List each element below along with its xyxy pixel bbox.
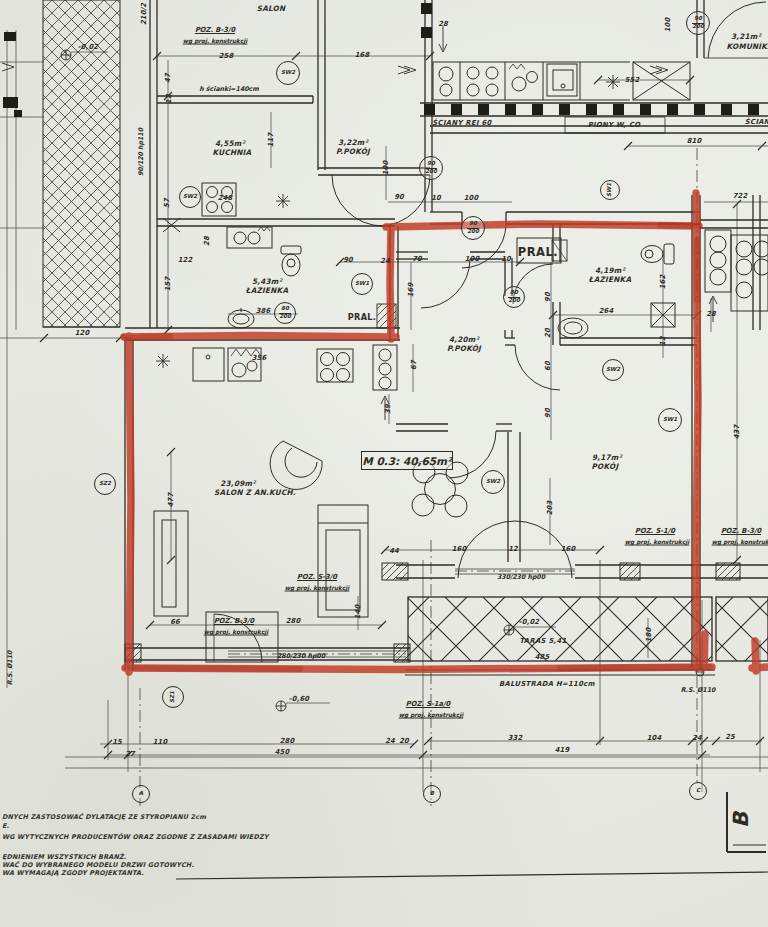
grid-axis-lines <box>140 148 697 806</box>
scanned-floor-plan-sheet: { "meta": { "description": "Scanned arch… <box>0 0 768 927</box>
section-marker-b <box>176 792 768 879</box>
existing-wall-hatch <box>43 0 120 327</box>
door-arcs <box>214 2 766 662</box>
section-marker-letter: B <box>729 812 753 828</box>
terrace <box>125 563 768 675</box>
apartment-area-label: M 0.3: 40,65m² <box>361 451 453 470</box>
